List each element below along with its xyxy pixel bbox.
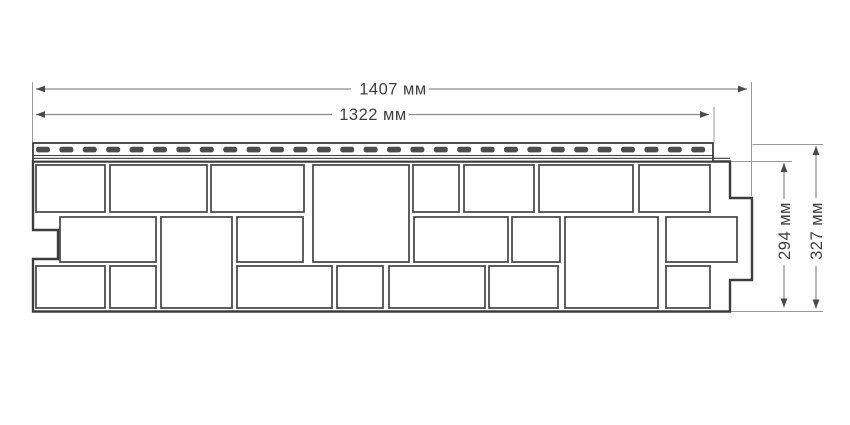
perforation-slot xyxy=(691,147,705,153)
stone-brick xyxy=(414,217,508,262)
perforation-slot xyxy=(410,147,424,153)
panel-body xyxy=(33,143,752,312)
perforation-slot xyxy=(340,147,354,153)
perforation-slot xyxy=(527,147,541,153)
stone-brick xyxy=(313,165,409,262)
drawing-canvas: 1407 мм 1322 мм 294 мм 327 мм xyxy=(0,0,850,425)
arrowhead xyxy=(36,86,45,93)
arrowhead xyxy=(813,146,820,155)
stone-brick xyxy=(60,217,156,262)
perforation-slot xyxy=(574,147,588,153)
dim-nail-strip-width-label: 1322 мм xyxy=(339,106,406,124)
perforation-slot xyxy=(36,147,50,153)
perforation-slot xyxy=(457,147,471,153)
stone-brick xyxy=(666,217,737,262)
stone-brick xyxy=(36,165,105,212)
arrowhead xyxy=(781,299,788,308)
perforation-slot xyxy=(551,147,565,153)
perforation-slot xyxy=(621,147,635,153)
perforation-slot xyxy=(153,147,167,153)
perforation-slot xyxy=(668,147,682,153)
perforation-slot xyxy=(364,147,378,153)
perforation-slot xyxy=(387,147,401,153)
perforation-slot xyxy=(644,147,658,153)
stone-brick xyxy=(464,165,534,212)
arrowhead xyxy=(781,163,788,172)
stone-brick xyxy=(389,266,485,308)
perforation-slot xyxy=(481,147,495,153)
perforation-slot xyxy=(59,147,73,153)
stone-brick xyxy=(413,165,459,212)
stone-brick xyxy=(36,266,105,308)
stone-brick xyxy=(237,266,332,308)
stone-brick xyxy=(539,165,633,212)
arrowhead xyxy=(700,111,709,118)
perforation-slot xyxy=(270,147,284,153)
stone-brick xyxy=(110,266,156,308)
stone-brick xyxy=(237,217,303,262)
stone-brick xyxy=(666,266,710,308)
dim-total-height-label: 327 мм xyxy=(808,202,826,260)
stone-brick xyxy=(337,266,383,308)
dim-panel-height-label: 294 мм xyxy=(776,202,794,260)
stone-brick xyxy=(639,165,710,212)
perforation-slot xyxy=(504,147,518,153)
perforation-slot xyxy=(247,147,261,153)
stone-brick xyxy=(489,266,558,308)
perforation-slot xyxy=(317,147,331,153)
stone-brick xyxy=(161,217,232,308)
perforation-slot xyxy=(200,147,214,153)
stone-brick xyxy=(110,165,207,212)
perforation-slot xyxy=(293,147,307,153)
stone-brick xyxy=(211,165,304,212)
stone-brick xyxy=(565,217,658,308)
perforation-slot xyxy=(598,147,612,153)
perforation-slot xyxy=(83,147,97,153)
perforation-slot xyxy=(176,147,190,153)
perforation-slot xyxy=(434,147,448,153)
arrowhead xyxy=(36,111,45,118)
perforation-slot xyxy=(130,147,144,153)
stone-brick xyxy=(512,217,560,262)
arrowhead xyxy=(738,86,747,93)
perforation-slot xyxy=(223,147,237,153)
arrowhead xyxy=(813,300,820,309)
panel-dimension-drawing: 1407 мм 1322 мм 294 мм 327 мм xyxy=(0,0,850,425)
perforation-slot xyxy=(106,147,120,153)
dim-total-width-label: 1407 мм xyxy=(359,81,426,99)
